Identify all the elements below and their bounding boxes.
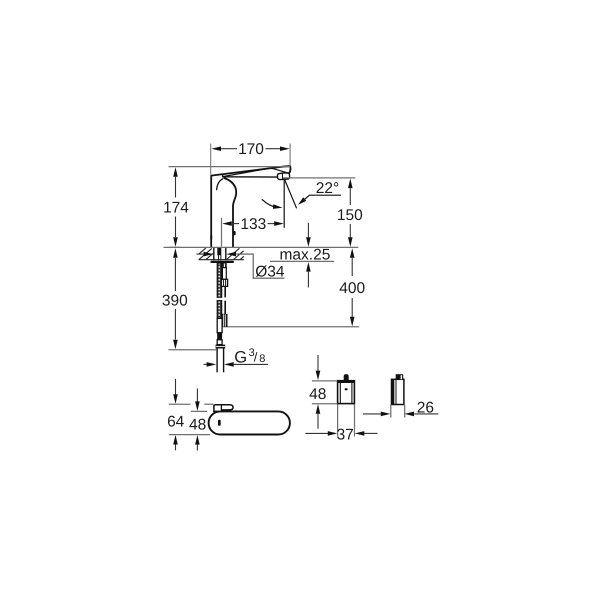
svg-text:174: 174 [163,200,189,217]
svg-text:150: 150 [337,207,363,224]
svg-text:8: 8 [259,353,265,365]
svg-text:26: 26 [417,400,434,417]
svg-text:Ø34: Ø34 [255,263,285,280]
svg-text:max.25: max.25 [280,246,331,263]
svg-text:48: 48 [309,386,326,403]
svg-text:133: 133 [240,216,266,233]
svg-text:390: 390 [162,293,188,310]
svg-text:170: 170 [238,141,264,158]
svg-text:400: 400 [339,280,365,297]
svg-text:G: G [234,349,247,367]
svg-text:48: 48 [189,416,206,433]
svg-text:22°: 22° [316,180,339,197]
svg-text:37: 37 [337,427,354,444]
svg-text:64: 64 [167,414,185,431]
svg-text:/: / [254,350,258,365]
